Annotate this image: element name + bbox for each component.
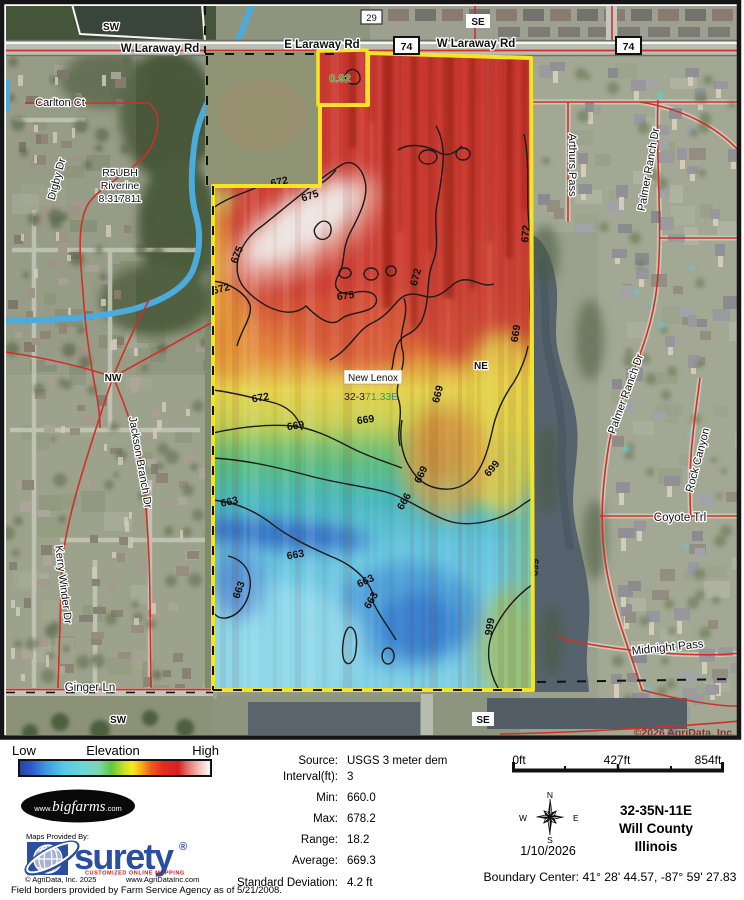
svg-text:Source:: Source: — [298, 755, 338, 767]
svg-text:Arthurs Pass: Arthurs Pass — [566, 134, 578, 197]
svg-text:32-371.33E: 32-371.33E — [344, 391, 398, 403]
svg-text:Range:: Range: — [301, 834, 338, 846]
svg-text:Carlton Ct: Carlton Ct — [35, 97, 85, 109]
svg-text:NE: NE — [474, 361, 488, 372]
svg-text:Illinois: Illinois — [635, 839, 678, 854]
svg-text:32-35N-11E: 32-35N-11E — [620, 803, 692, 818]
svg-text:Min:: Min: — [316, 792, 338, 804]
svg-text:New Lenox: New Lenox — [348, 373, 398, 384]
svg-text:854ft: 854ft — [695, 753, 722, 767]
svg-text:0.92: 0.92 — [329, 73, 350, 85]
svg-text:Elevation: Elevation — [86, 743, 139, 758]
svg-text:N: N — [547, 790, 553, 800]
svg-text:© AgriData, Inc. 2025: © AgriData, Inc. 2025 — [25, 875, 96, 884]
svg-text:SW: SW — [103, 22, 120, 33]
svg-text:675: 675 — [336, 289, 355, 303]
svg-text:SE: SE — [476, 715, 490, 726]
svg-text:4.2 ft: 4.2 ft — [347, 877, 373, 889]
svg-text:W Laraway Rd: W Laraway Rd — [121, 43, 200, 55]
svg-text:W: W — [519, 813, 527, 823]
svg-text:8.317811: 8.317811 — [98, 193, 141, 205]
svg-text:669: 669 — [286, 419, 305, 433]
svg-text:SE: SE — [471, 17, 485, 28]
svg-text:669.3: 669.3 — [347, 855, 376, 867]
svg-text:USGS 3 meter dem: USGS 3 meter dem — [347, 755, 447, 767]
svg-text:E: E — [573, 813, 579, 823]
svg-text:www.AgriDataInc.com: www.AgriDataInc.com — [125, 875, 199, 884]
svg-text:18.2: 18.2 — [347, 834, 369, 846]
svg-text:W Laraway Rd: W Laraway Rd — [437, 38, 516, 50]
svg-text:Average:: Average: — [292, 855, 338, 867]
svg-text:29: 29 — [366, 13, 377, 24]
svg-text:Max:: Max: — [313, 813, 338, 825]
svg-text:Standard Deviation:: Standard Deviation: — [237, 877, 338, 889]
svg-text:Interval(ft):: Interval(ft): — [283, 771, 338, 783]
svg-text:Ginger Ln: Ginger Ln — [65, 682, 116, 694]
svg-text:E Laraway Rd: E Laraway Rd — [284, 39, 359, 51]
svg-text:74: 74 — [401, 41, 413, 53]
svg-text:Low: Low — [12, 743, 36, 758]
svg-text:Will County: Will County — [619, 821, 694, 836]
svg-text:NW: NW — [105, 373, 122, 384]
svg-text:SW: SW — [110, 715, 127, 726]
svg-text:1/10/2026: 1/10/2026 — [520, 844, 576, 858]
svg-text:R5UBH: R5UBH — [102, 167, 138, 179]
svg-text:Coyote Trl: Coyote Trl — [654, 512, 706, 524]
svg-text:Riverine: Riverine — [101, 180, 140, 192]
svg-text:3: 3 — [347, 771, 353, 783]
svg-text:669: 669 — [356, 413, 375, 427]
svg-text:660.0: 660.0 — [347, 792, 376, 804]
svg-text:678.2: 678.2 — [347, 813, 376, 825]
svg-text:Boundary Center: 41° 28' 44.57: Boundary Center: 41° 28' 44.57, -87° 59'… — [484, 870, 737, 884]
svg-text:®: ® — [179, 841, 187, 853]
svg-text:74: 74 — [623, 41, 635, 53]
svg-text:High: High — [192, 743, 219, 758]
